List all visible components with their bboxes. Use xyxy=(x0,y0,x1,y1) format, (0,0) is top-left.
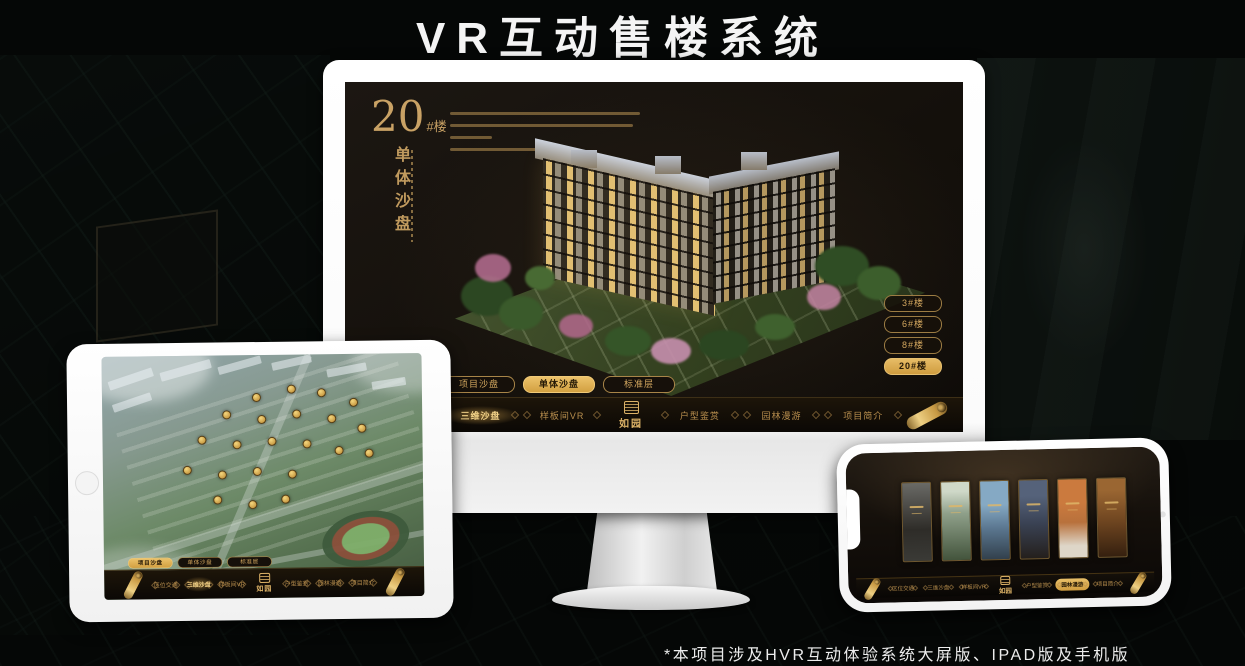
brand-logo: 如园 xyxy=(992,576,1018,596)
building-headline: 20#楼 xyxy=(371,96,447,138)
building-marker[interactable] xyxy=(183,466,192,475)
building-marker[interactable] xyxy=(253,467,262,476)
desktop-subtabs: 项目沙盘 单体沙盘 标准层 xyxy=(443,376,675,393)
tablet-home-button[interactable] xyxy=(75,471,99,495)
building-facade-side xyxy=(713,168,835,304)
building-marker[interactable] xyxy=(257,415,266,424)
subtab-standard-floor[interactable]: 标准层 xyxy=(603,376,675,393)
nav-item-garden-roam[interactable]: 园林漫游 xyxy=(314,575,345,590)
building-marker[interactable] xyxy=(222,410,231,419)
background-screenshot-strip xyxy=(977,58,1245,440)
nav-item-location-traffic[interactable]: 区位交通 xyxy=(886,581,920,594)
brand-logo-text: 如园 xyxy=(249,584,279,594)
floor-button-3[interactable]: 3#楼 xyxy=(884,295,942,312)
brand-seal-icon xyxy=(624,401,639,414)
vertical-subtitle-decoration xyxy=(411,150,413,242)
scroll-roll-icon[interactable] xyxy=(384,566,406,597)
building-marker[interactable] xyxy=(233,440,242,449)
brand-logo: 如园 xyxy=(249,573,279,594)
floor-button-8[interactable]: 8#楼 xyxy=(884,337,942,354)
flowering-tree xyxy=(559,314,593,338)
gallery-card-autumn[interactable] xyxy=(1057,478,1089,559)
nav-item-project-intro[interactable]: 项目简介 xyxy=(823,406,903,425)
building-marker[interactable] xyxy=(302,439,311,448)
gallery-card-interior[interactable] xyxy=(1096,477,1128,558)
building-marker[interactable] xyxy=(335,446,344,455)
nav-item-project-intro[interactable]: 项目简介 xyxy=(1091,577,1125,590)
description-line xyxy=(450,112,640,115)
scene-gallery xyxy=(901,477,1128,562)
floor-button-group: 3#楼 6#楼 8#楼 20#楼 xyxy=(884,295,942,379)
nav-item-unit-appreciation[interactable]: 户型鉴赏 xyxy=(1020,578,1054,591)
nav-item-3d-sandtable[interactable]: 三维沙盘 xyxy=(441,406,521,425)
building-marker[interactable] xyxy=(357,424,366,433)
building-number-suffix: #楼 xyxy=(426,119,446,134)
gallery-card-courtyard[interactable] xyxy=(901,482,933,563)
flowering-tree xyxy=(475,254,511,282)
tree xyxy=(699,330,749,360)
description-line xyxy=(450,124,633,127)
building-marker[interactable] xyxy=(349,398,358,407)
floor-button-20[interactable]: 20#楼 xyxy=(884,358,942,375)
nav-item-project-intro[interactable]: 项目简介 xyxy=(347,575,378,590)
model-building xyxy=(543,158,843,328)
building-marker[interactable] xyxy=(213,495,222,504)
nav-item-3d-sandtable[interactable]: 三维沙盘 xyxy=(922,581,956,594)
building-marker[interactable] xyxy=(327,414,336,423)
subtab-single-sandtable[interactable]: 单体沙盘 xyxy=(523,376,595,393)
building-3d-model[interactable] xyxy=(455,158,925,398)
scroll-roll-icon[interactable] xyxy=(905,399,950,431)
background-sign-board xyxy=(96,209,218,342)
floor-button-6[interactable]: 6#楼 xyxy=(884,316,942,333)
subtab-single-sandtable[interactable]: 单体沙盘 xyxy=(178,557,223,568)
scroll-roll-icon[interactable] xyxy=(122,570,144,600)
section-vertical-title: 单体沙盘 xyxy=(388,146,412,238)
building-marker[interactable] xyxy=(252,393,261,402)
tree xyxy=(525,266,555,290)
monitor-base xyxy=(552,586,750,610)
monitor-stand xyxy=(587,511,717,591)
building-marker[interactable] xyxy=(287,385,296,394)
nav-item-3d-sandtable[interactable]: 三维沙盘 xyxy=(183,577,214,592)
building-marker[interactable] xyxy=(281,495,290,504)
phone-notch xyxy=(846,489,860,549)
scroll-roll-icon[interactable] xyxy=(1129,570,1148,595)
tablet-navbar: 区位交通 三维沙盘 样板间VR 如园 户型鉴赏 园林漫游 项目简介 xyxy=(104,566,424,600)
nav-item-unit-appreciation[interactable]: 户型鉴赏 xyxy=(660,406,740,425)
building-number: 20 xyxy=(371,92,424,141)
building-marker[interactable] xyxy=(218,470,227,479)
building-marker[interactable] xyxy=(292,409,301,418)
gallery-card-building-dusk[interactable] xyxy=(1018,479,1050,560)
nav-item-unit-appreciation[interactable]: 户型鉴赏 xyxy=(281,575,312,590)
nav-item-showroom-vr[interactable]: 样板间VR xyxy=(216,576,247,591)
gallery-card-garden[interactable] xyxy=(940,481,972,562)
building-marker[interactable] xyxy=(288,470,297,479)
building-marker[interactable] xyxy=(197,436,206,445)
phone-navbar: 区位交通 三维沙盘 样板间VR 如园 户型鉴赏 园林漫游 项目简介 xyxy=(856,572,1154,599)
description-line xyxy=(450,136,492,139)
brand-seal-icon xyxy=(259,573,270,583)
tree xyxy=(499,296,543,330)
flowering-tree xyxy=(651,338,691,364)
tablet-subtabs: 项目沙盘 单体沙盘 标准层 xyxy=(128,556,272,568)
nav-item-showroom-vr[interactable]: 样板间VR xyxy=(522,406,602,425)
phone-device: 区位交通 三维沙盘 样板间VR 如园 户型鉴赏 园林漫游 项目简介 xyxy=(836,437,1172,612)
tree xyxy=(755,314,795,340)
subtab-standard-floor[interactable]: 标准层 xyxy=(227,556,272,567)
brand-logo-text: 如园 xyxy=(992,585,1018,596)
page-title: VR互动售楼系统 xyxy=(0,2,1245,66)
tablet-device: 项目沙盘 单体沙盘 标准层 区位交通 三维沙盘 样板间VR 如园 户型鉴赏 园林… xyxy=(66,340,453,623)
brand-logo: 如园 xyxy=(604,401,658,430)
gallery-card-building-day[interactable] xyxy=(979,480,1011,561)
brand-seal-icon xyxy=(1000,576,1010,585)
building-marker[interactable] xyxy=(248,500,257,509)
subtab-project-sandtable[interactable]: 项目沙盘 xyxy=(443,376,515,393)
flowering-tree xyxy=(807,284,841,310)
nav-item-garden-roam[interactable]: 园林漫游 xyxy=(1056,578,1090,591)
scroll-roll-icon[interactable] xyxy=(863,576,882,601)
nav-item-location-traffic[interactable]: 区位交通 xyxy=(150,577,181,592)
building-marker[interactable] xyxy=(365,449,374,458)
poster-canvas: VR互动售楼系统 20#楼 单体沙盘 xyxy=(0,0,1245,666)
building-marker[interactable] xyxy=(267,437,276,446)
building-marker[interactable] xyxy=(317,388,326,397)
subtab-project-sandtable[interactable]: 项目沙盘 xyxy=(128,558,173,569)
tablet-app-screen[interactable]: 项目沙盘 单体沙盘 标准层 区位交通 三维沙盘 样板间VR 如园 户型鉴赏 园林… xyxy=(101,353,424,600)
nav-item-showroom-vr[interactable]: 样板间VR xyxy=(957,580,991,593)
footnote: *本项目涉及HVR互动体验系统大屏版、IPAD版及手机版 xyxy=(664,641,1130,665)
phone-app-screen[interactable]: 区位交通 三维沙盘 样板间VR 如园 户型鉴赏 园林漫游 项目简介 xyxy=(845,446,1162,603)
nav-item-garden-roam[interactable]: 园林漫游 xyxy=(742,406,822,425)
tree xyxy=(605,326,651,356)
brand-logo-text: 如园 xyxy=(604,415,658,430)
